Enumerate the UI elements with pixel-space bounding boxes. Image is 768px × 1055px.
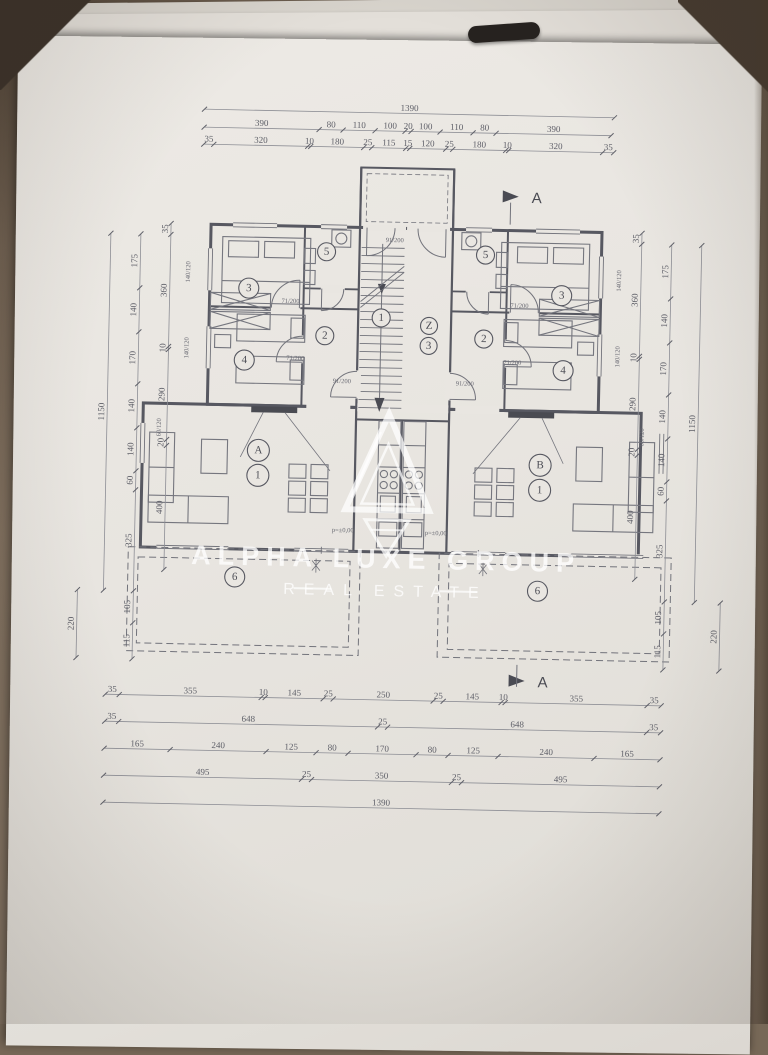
section-marker-bottom: A <box>508 665 548 692</box>
svg-text:290: 290 <box>156 387 166 401</box>
svg-text:60/120: 60/120 <box>156 418 163 436</box>
desk-edge-right <box>754 0 768 1024</box>
svg-text:100: 100 <box>419 121 433 131</box>
svg-text:4: 4 <box>241 354 247 366</box>
svg-text:165: 165 <box>620 749 634 759</box>
svg-text:2: 2 <box>481 333 487 345</box>
svg-text:25: 25 <box>324 688 334 698</box>
svg-text:35: 35 <box>650 695 660 705</box>
svg-text:80: 80 <box>428 744 438 754</box>
svg-text:180: 180 <box>331 136 345 146</box>
svg-text:240: 240 <box>211 740 225 750</box>
room-label-bedroom3-left: 3 <box>239 278 259 298</box>
svg-text:180: 180 <box>472 139 486 149</box>
svg-text:2: 2 <box>322 330 328 342</box>
room-label-apartment-a: A <box>247 439 269 461</box>
svg-text:110: 110 <box>450 122 464 132</box>
room-label-bath5-right: 5 <box>476 246 494 264</box>
svg-text:35: 35 <box>108 684 118 694</box>
dim-chain-bottom-halves: 356482564835 <box>102 711 663 736</box>
svg-text:6: 6 <box>232 571 238 583</box>
floor-plan-drawing: 1390 390801101002010011080390 3532010180… <box>0 0 768 1024</box>
opening-notes: 71/200 71/200 71/200 71/200 91/200 91/20… <box>154 232 650 541</box>
svg-text:25: 25 <box>434 691 444 701</box>
svg-text:3: 3 <box>559 290 565 302</box>
svg-text:80: 80 <box>327 119 337 129</box>
svg-text:325: 325 <box>654 544 664 558</box>
svg-text:220: 220 <box>66 616 76 630</box>
svg-text:35: 35 <box>160 224 170 234</box>
porch-inner-line <box>366 174 448 224</box>
svg-text:25: 25 <box>378 716 388 726</box>
svg-text:10: 10 <box>157 343 167 353</box>
svg-text:60: 60 <box>656 486 666 496</box>
svg-text:390: 390 <box>547 124 561 134</box>
svg-text:1390: 1390 <box>372 797 391 807</box>
svg-text:35: 35 <box>604 142 614 152</box>
svg-text:10: 10 <box>628 353 638 363</box>
svg-text:71/200: 71/200 <box>503 359 521 366</box>
svg-text:105: 105 <box>653 610 663 624</box>
svg-text:175: 175 <box>129 253 139 267</box>
svg-text:110: 110 <box>353 120 367 130</box>
svg-text:140: 140 <box>126 398 136 412</box>
svg-text:10: 10 <box>499 692 509 702</box>
svg-text:91/200: 91/200 <box>333 378 351 385</box>
svg-text:35: 35 <box>204 134 214 144</box>
svg-text:390: 390 <box>255 118 269 128</box>
svg-text:1: 1 <box>255 469 261 481</box>
svg-text:170: 170 <box>375 743 389 753</box>
svg-text:125: 125 <box>284 741 298 751</box>
dim-chain-left-inner: 353601029020400 <box>153 221 174 572</box>
svg-text:4: 4 <box>560 365 566 377</box>
svg-text:91/200: 91/200 <box>456 380 474 387</box>
svg-text:145: 145 <box>465 691 479 701</box>
svg-text:35: 35 <box>107 711 117 721</box>
svg-text:25: 25 <box>445 139 455 149</box>
svg-text:B: B <box>536 459 544 471</box>
svg-text:648: 648 <box>510 719 524 729</box>
dim-chain-right-total: 1150 <box>683 243 704 605</box>
svg-text:400: 400 <box>625 510 635 524</box>
svg-text:A: A <box>537 674 547 691</box>
svg-text:170: 170 <box>658 361 668 375</box>
svg-text:60/120: 60/120 <box>639 428 646 446</box>
svg-text:71/200: 71/200 <box>281 298 299 305</box>
room-label-core-number: 3 <box>420 337 437 354</box>
svg-text:140/120: 140/120 <box>183 337 190 358</box>
svg-text:100: 100 <box>383 120 397 130</box>
entrance-porch <box>360 167 454 229</box>
svg-text:170: 170 <box>127 350 137 364</box>
svg-text:5: 5 <box>324 246 330 258</box>
svg-text:71/200: 71/200 <box>510 303 528 310</box>
svg-text:115: 115 <box>121 633 131 647</box>
svg-text:10: 10 <box>305 136 315 146</box>
svg-text:400: 400 <box>154 500 164 514</box>
svg-text:115: 115 <box>382 137 396 147</box>
svg-text:220: 220 <box>708 630 718 644</box>
staircase <box>358 243 405 412</box>
svg-text:240: 240 <box>539 747 553 757</box>
svg-text:80: 80 <box>328 742 338 752</box>
svg-text:355: 355 <box>183 685 197 695</box>
svg-text:648: 648 <box>241 714 255 724</box>
svg-text:91/200: 91/200 <box>386 237 404 244</box>
svg-text:165: 165 <box>130 738 144 748</box>
svg-text:60: 60 <box>125 475 135 485</box>
svg-text:1: 1 <box>537 484 543 496</box>
svg-text:105: 105 <box>122 599 132 613</box>
svg-text:71/200: 71/200 <box>286 355 304 362</box>
svg-text:320: 320 <box>549 141 563 151</box>
svg-text:20: 20 <box>626 447 636 457</box>
dim-chain-top-detail: 35320101802511515120251801032035 <box>201 134 616 156</box>
svg-text:15: 15 <box>403 138 413 148</box>
svg-text:115: 115 <box>652 645 662 659</box>
svg-text:6: 6 <box>535 585 541 597</box>
dim-chain-right-middle: 17514017014014060325105115 <box>652 242 675 672</box>
svg-text:175: 175 <box>660 264 670 278</box>
room-label-stairs: 1 <box>372 309 390 327</box>
room-label-hall2-left: 2 <box>316 327 334 345</box>
svg-text:35: 35 <box>631 234 641 244</box>
svg-text:140/120: 140/120 <box>614 346 621 367</box>
dim-chain-left-total: 1150 <box>92 230 113 592</box>
svg-text:495: 495 <box>554 774 568 784</box>
dim-chain-bottom-major: 4952535025495 <box>101 765 662 790</box>
svg-text:25: 25 <box>452 772 462 782</box>
svg-text:350: 350 <box>375 770 389 780</box>
room-label-hall2-right: 2 <box>475 330 493 348</box>
svg-text:140: 140 <box>657 409 667 423</box>
svg-text:25: 25 <box>302 769 312 779</box>
svg-text:p=±0,00: p=±0,00 <box>425 530 447 537</box>
svg-text:A: A <box>254 444 262 456</box>
svg-text:p=±0,00: p=±0,00 <box>332 527 354 534</box>
svg-text:20: 20 <box>155 437 165 447</box>
svg-text:80: 80 <box>480 122 490 132</box>
section-marker-top: A <box>502 189 542 225</box>
room-label-apartment-b: B <box>529 454 551 476</box>
dim-chain-bottom-total: 1390 <box>100 792 661 817</box>
room-label-bedroom3-right: 3 <box>551 285 571 305</box>
svg-text:120: 120 <box>421 138 435 148</box>
dim-chain-bottom-detail: 353551014525250251451035535 <box>103 684 664 709</box>
lower-body-walls <box>140 403 641 557</box>
svg-text:3: 3 <box>426 340 432 352</box>
svg-text:125: 125 <box>466 745 480 755</box>
svg-text:495: 495 <box>196 767 210 777</box>
svg-text:5: 5 <box>483 249 489 261</box>
svg-text:1150: 1150 <box>96 402 106 420</box>
room-label-bedroom4-right: 4 <box>553 361 573 381</box>
room-label-living-a: 1 <box>247 464 269 486</box>
svg-text:1150: 1150 <box>687 415 697 433</box>
svg-text:Z: Z <box>426 320 433 332</box>
svg-text:140: 140 <box>656 453 666 467</box>
svg-text:250: 250 <box>376 689 390 699</box>
svg-text:360: 360 <box>159 283 169 297</box>
svg-text:140/120: 140/120 <box>616 270 623 291</box>
svg-text:10: 10 <box>259 687 269 697</box>
svg-text:20: 20 <box>404 121 414 131</box>
dim-chain-left-terrace: 220 <box>65 587 80 660</box>
room-label-core-letter: Z <box>420 317 437 334</box>
svg-text:145: 145 <box>287 688 301 698</box>
svg-text:320: 320 <box>254 135 268 145</box>
svg-text:1: 1 <box>378 312 384 324</box>
svg-text:290: 290 <box>627 397 637 411</box>
room-label-living-b: 1 <box>528 479 550 501</box>
svg-text:10: 10 <box>503 140 513 150</box>
dim-chain-right-inner: 353601029020400 <box>624 231 645 582</box>
svg-text:1390: 1390 <box>400 103 419 113</box>
svg-text:140: 140 <box>659 313 669 327</box>
svg-text:3: 3 <box>246 282 252 294</box>
svg-text:140/120: 140/120 <box>185 261 192 282</box>
svg-text:355: 355 <box>569 693 583 703</box>
dim-chain-bottom-rooms: 1652401258017080125240165 <box>102 738 663 763</box>
room-label-terrace-right: 6 <box>527 581 547 601</box>
section-arrow-icon <box>503 190 519 202</box>
svg-text:35: 35 <box>649 722 659 732</box>
svg-text:ALPHA LUXE GROUP: ALPHA LUXE GROUP <box>191 540 582 578</box>
room-label-bath5-left: 5 <box>317 243 335 261</box>
room-label-bedroom4-left: 4 <box>234 350 254 370</box>
dim-chain-right-terrace: 220 <box>708 600 723 673</box>
svg-text:325: 325 <box>123 533 133 547</box>
svg-text:25: 25 <box>363 137 373 147</box>
svg-text:140: 140 <box>128 302 138 316</box>
svg-text:A: A <box>532 190 542 207</box>
svg-text:360: 360 <box>629 293 639 307</box>
svg-text:140: 140 <box>125 442 135 456</box>
